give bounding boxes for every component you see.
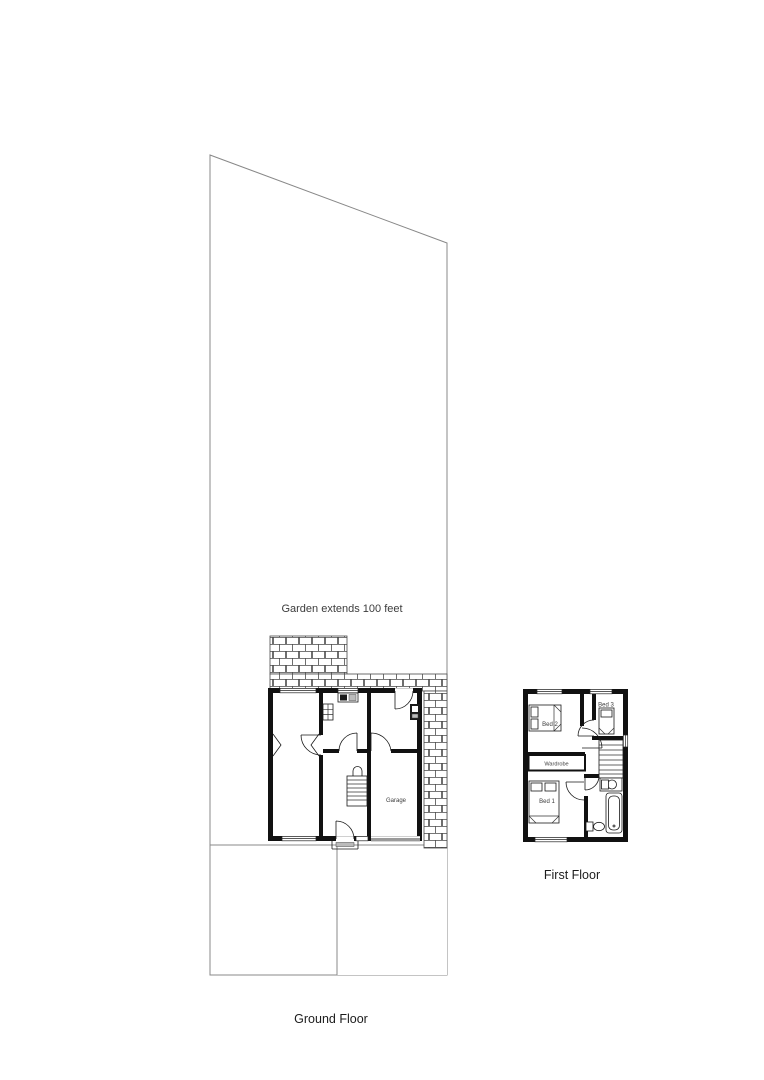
rear-door-opening xyxy=(395,688,413,693)
porch-step xyxy=(336,843,354,847)
bed3-pillow xyxy=(601,710,612,717)
floorplan-drawing: Garage xyxy=(0,0,764,1080)
bed3-furniture xyxy=(599,708,614,734)
bath-drain xyxy=(613,825,615,827)
ff-stairs-outline xyxy=(599,740,623,778)
cooker xyxy=(340,695,347,701)
stairs-outline xyxy=(347,776,367,806)
bed2-label: Bed 2 xyxy=(542,722,558,728)
wall-hall-3 xyxy=(391,749,417,753)
wardrobe-label: Wardrobe xyxy=(544,761,568,767)
bed2-pillow-1 xyxy=(531,707,538,717)
ff-wall-bath-top xyxy=(584,774,599,778)
bed3-label: Bed 3 xyxy=(598,703,614,709)
garden-plot xyxy=(210,155,447,975)
window-hall-front xyxy=(356,836,368,840)
wall-garage xyxy=(367,753,371,836)
garage-label: Garage xyxy=(386,798,407,804)
floorplan-page: Garage xyxy=(0,0,764,1080)
garage-door xyxy=(371,838,420,841)
ground-floor-plan: Garage xyxy=(268,688,422,849)
bed2-pillow-2 xyxy=(531,719,538,729)
toilet-bowl xyxy=(594,822,605,830)
ground-floor-footprint xyxy=(268,688,422,841)
first-floor-stairs xyxy=(599,740,623,778)
first-floor-title: First Floor xyxy=(544,868,600,882)
patio-strip-side xyxy=(424,691,447,848)
wall-left xyxy=(268,688,273,841)
ground-floor-title: Ground Floor xyxy=(294,1012,368,1026)
counter-appliance xyxy=(349,695,356,701)
wall-hall-2 xyxy=(357,749,371,753)
wall-living-upper xyxy=(319,693,323,735)
driveway xyxy=(337,846,447,975)
bed1-label: Bed 1 xyxy=(539,799,555,805)
wall-living-lower xyxy=(319,755,323,836)
ff-wall-bed3 xyxy=(592,694,596,720)
ff-wall-stairs xyxy=(592,736,628,740)
wall-hall-1 xyxy=(323,749,339,753)
boiler-vent xyxy=(412,714,418,718)
vanity-cabinet xyxy=(602,780,609,789)
wardrobe: Wardrobe xyxy=(529,755,586,771)
garden-extends-label: Garden extends 100 feet xyxy=(281,603,402,615)
ff-wall-landing xyxy=(580,694,584,726)
boiler-panel xyxy=(412,706,418,712)
bed1-pillow-1 xyxy=(531,783,542,791)
front-door-opening xyxy=(336,836,354,841)
bed1-pillow-2 xyxy=(545,783,556,791)
ff-wall-right xyxy=(623,689,628,842)
ff-wall-left xyxy=(523,689,528,842)
first-floor-plan: Wardrobe xyxy=(523,689,628,842)
patio-block xyxy=(270,636,347,674)
toilet-cistern xyxy=(586,822,593,831)
wall-kitchen-dining xyxy=(367,693,371,749)
